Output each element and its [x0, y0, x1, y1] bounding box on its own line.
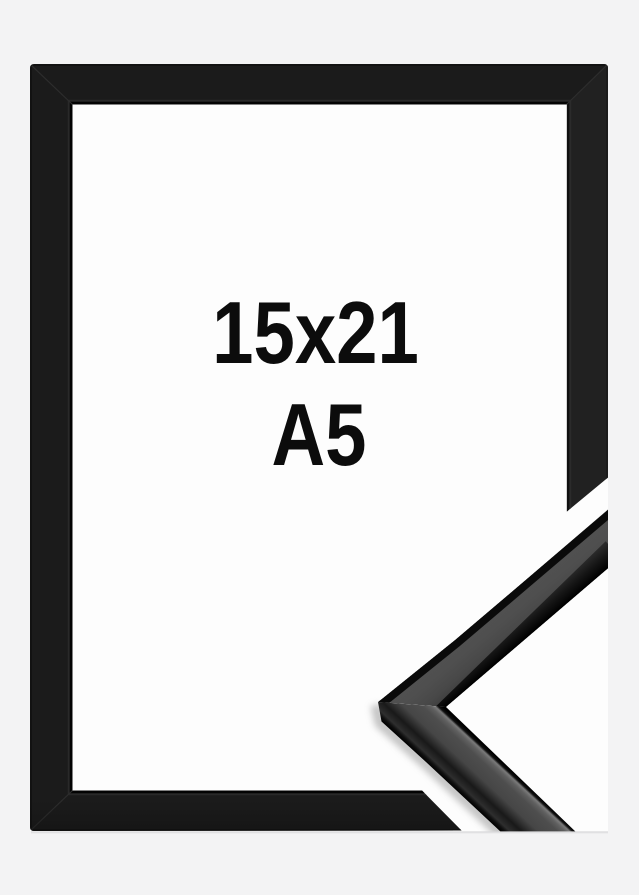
svg-text:15x21: 15x21: [212, 284, 419, 382]
svg-text:A5: A5: [271, 386, 366, 484]
